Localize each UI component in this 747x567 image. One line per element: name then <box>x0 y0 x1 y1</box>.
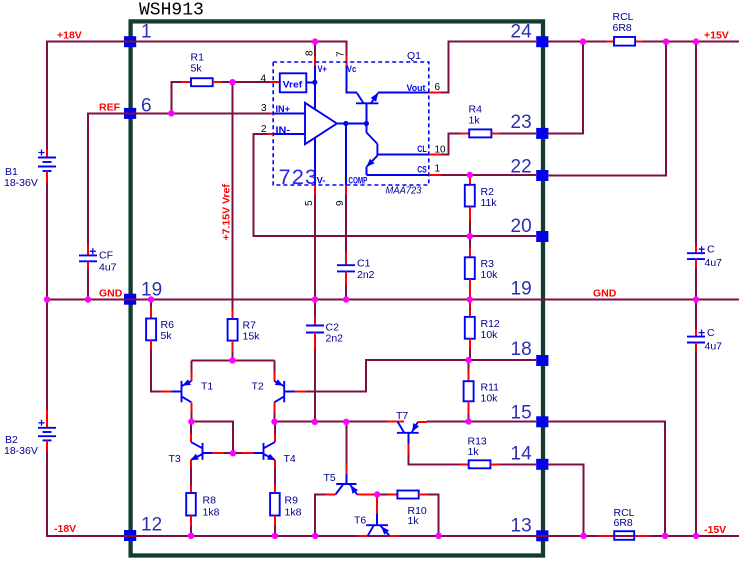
svg-text:T2: T2 <box>252 381 264 393</box>
svg-text:10k: 10k <box>481 329 499 341</box>
svg-text:CL: CL <box>417 144 427 155</box>
svg-text:9: 9 <box>335 200 346 206</box>
svg-text:CF: CF <box>99 250 113 262</box>
svg-text:CS: CS <box>417 165 427 176</box>
svg-text:1: 1 <box>435 164 441 175</box>
svg-text:1k8: 1k8 <box>285 507 302 519</box>
svg-text:T4: T4 <box>284 453 296 465</box>
svg-text:14: 14 <box>511 443 533 464</box>
svg-text:8: 8 <box>305 50 316 56</box>
svg-text:V-: V- <box>317 176 326 187</box>
svg-text:C: C <box>707 244 715 256</box>
svg-text:2n2: 2n2 <box>326 333 344 345</box>
svg-text:23: 23 <box>511 112 532 133</box>
svg-text:18-36V: 18-36V <box>4 177 38 189</box>
svg-text:11k: 11k <box>481 197 498 209</box>
svg-text:13: 13 <box>511 516 532 537</box>
svg-text:1k: 1k <box>408 515 420 527</box>
svg-text:4u7: 4u7 <box>705 341 723 353</box>
svg-text:4: 4 <box>261 74 267 85</box>
svg-text:R8: R8 <box>203 495 217 507</box>
svg-text:6: 6 <box>435 82 441 93</box>
svg-text:WSH913: WSH913 <box>139 1 204 21</box>
svg-text:10k: 10k <box>481 269 499 281</box>
svg-text:5k: 5k <box>191 63 203 75</box>
svg-text:18: 18 <box>511 339 532 360</box>
svg-text:723: 723 <box>278 166 318 191</box>
svg-text:6R8: 6R8 <box>613 22 632 34</box>
svg-text:R9: R9 <box>285 495 299 507</box>
svg-text:20: 20 <box>511 216 532 237</box>
svg-text:19: 19 <box>511 279 532 300</box>
svg-text:4u7: 4u7 <box>99 262 117 274</box>
svg-text:12: 12 <box>141 515 162 536</box>
svg-text:Vout: Vout <box>407 83 427 94</box>
svg-text:T3: T3 <box>169 453 181 465</box>
svg-text:T5: T5 <box>324 472 336 484</box>
svg-text:Vref: Vref <box>283 80 303 91</box>
svg-text:MAA723: MAA723 <box>386 185 422 197</box>
svg-text:6R8: 6R8 <box>614 517 633 529</box>
svg-text:T7: T7 <box>396 410 408 422</box>
svg-text:GND: GND <box>593 288 617 300</box>
svg-text:Q1: Q1 <box>407 50 421 62</box>
svg-text:10k: 10k <box>481 393 499 405</box>
svg-text:18-36V: 18-36V <box>4 445 38 457</box>
svg-text:V+: V+ <box>318 64 328 75</box>
svg-text:24: 24 <box>511 22 533 43</box>
svg-text:5: 5 <box>304 200 315 206</box>
svg-text:COMP: COMP <box>348 176 367 187</box>
svg-text:1k: 1k <box>468 446 480 458</box>
svg-text:C1: C1 <box>357 258 371 270</box>
svg-text:1k8: 1k8 <box>203 507 220 519</box>
svg-text:+15V: +15V <box>704 30 729 42</box>
svg-text:4u7: 4u7 <box>705 257 723 269</box>
svg-text:+7.15V Vref: +7.15V Vref <box>221 184 233 241</box>
svg-text:IN-: IN- <box>276 125 291 136</box>
svg-text:-15V: -15V <box>704 524 726 536</box>
svg-text:T1: T1 <box>201 381 213 393</box>
svg-text:-18V: -18V <box>54 523 76 535</box>
svg-text:5k: 5k <box>161 330 173 342</box>
svg-text:Vc: Vc <box>347 64 357 75</box>
svg-text:T6: T6 <box>354 515 366 527</box>
svg-text:15k: 15k <box>243 331 261 343</box>
svg-text:2n2: 2n2 <box>357 269 375 281</box>
svg-text:C: C <box>707 327 715 339</box>
svg-text:3: 3 <box>261 103 267 114</box>
svg-text:REF: REF <box>99 102 121 114</box>
svg-text:1k: 1k <box>469 115 481 127</box>
svg-text:15: 15 <box>511 402 532 423</box>
svg-text:IN+: IN+ <box>276 104 291 115</box>
svg-text:+18V: +18V <box>57 30 82 42</box>
svg-text:1: 1 <box>141 22 152 43</box>
svg-text:GND: GND <box>99 288 123 300</box>
svg-text:7: 7 <box>336 51 347 57</box>
